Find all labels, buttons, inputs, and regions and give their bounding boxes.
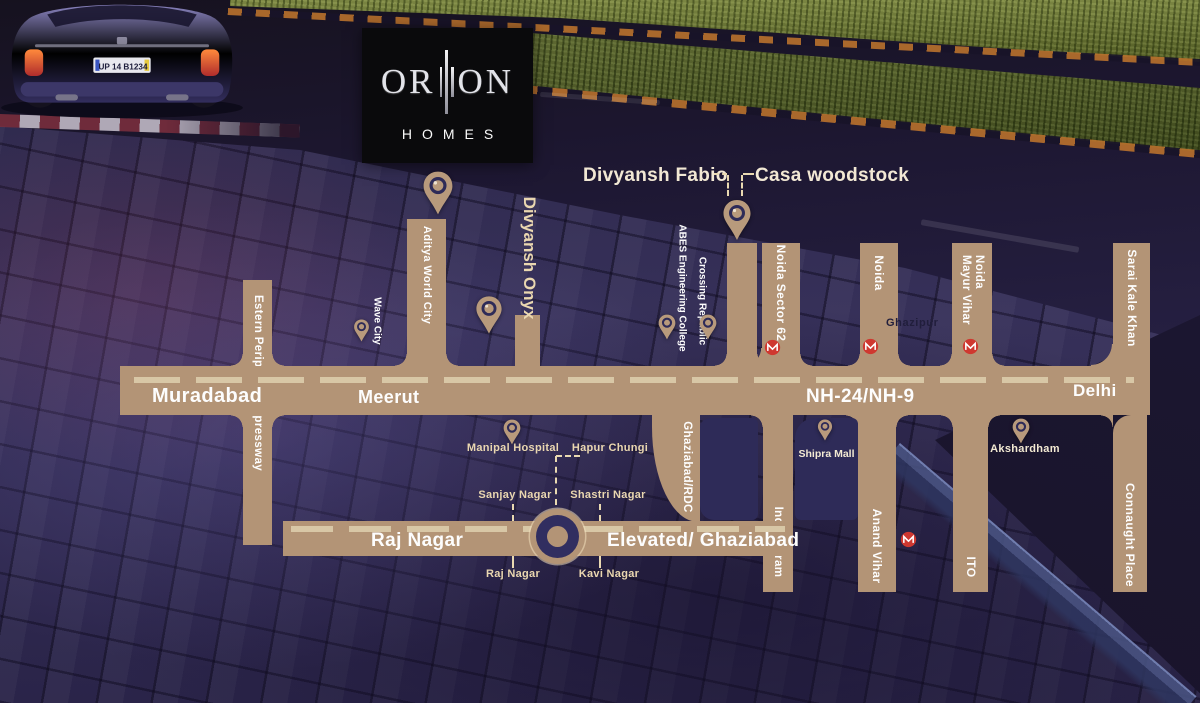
poi-connector (599, 504, 601, 521)
location-pin-shipra-mall-icon (817, 419, 833, 441)
location-pin-akshardham-icon (1011, 418, 1031, 444)
road-sarai-kale-khan: Sarai Kale Khan (1113, 243, 1150, 366)
road-nh24-nh9-highway: Muradabad Meerut NH-24/NH-9 Delhi (120, 366, 1150, 415)
location-pin-manipal-hospital-icon (502, 419, 522, 445)
road-fillet (272, 354, 284, 366)
location-pin-wave-city-icon (353, 319, 370, 342)
poi-connector (556, 455, 580, 457)
road-label: Anand Vihar (870, 509, 884, 584)
callout-connector (714, 173, 727, 175)
callout-connector (743, 173, 754, 175)
road-fillet (992, 354, 1004, 366)
city-block (700, 418, 758, 520)
road-fillet (744, 348, 762, 366)
metro-station-icon (900, 531, 917, 548)
license-plate-text: UP 14 B1234 (99, 62, 148, 71)
callout-divyansh-fabio: Divyansh Fabio (583, 165, 728, 187)
road-fillet (988, 415, 1000, 427)
road-ito: ITO (953, 415, 988, 592)
road-fillet (446, 354, 458, 366)
callout-connector (741, 175, 743, 196)
road-label: Ghaziabad/RDC (681, 422, 693, 513)
location-pin-divyansh-onyx-icon (475, 294, 503, 336)
poi-label-shipra-mall: Shipra Mall (795, 448, 858, 460)
logo-wordmark: OR ON (381, 50, 514, 114)
road-connaught-place: Connaught Place (1113, 415, 1147, 592)
road-label: Sarai Kale Khan (1125, 250, 1139, 347)
road-fillet (231, 354, 243, 366)
logo-text-on: ON (458, 62, 515, 102)
road-fillet (898, 354, 910, 366)
poi-connector (512, 556, 514, 568)
poi-label-hapur-chungi: Hapur Chungi (545, 442, 675, 454)
location-pin-aditya-world-city-icon (422, 170, 454, 216)
road-anand-vihar: Anand Vihar (858, 415, 896, 592)
road-label: ITO (964, 557, 978, 578)
metro-station-icon (962, 338, 979, 355)
road-label: Noida Sector 62 (774, 245, 788, 342)
city-label-delhi: Delhi (1073, 381, 1117, 401)
road-label: Aditya World City (421, 226, 433, 324)
road-fillet (800, 354, 812, 366)
location-pin-crossing-republic-icon (698, 314, 718, 340)
road-fillet (1091, 344, 1113, 366)
road-fillet (395, 354, 407, 366)
logo-subtitle: HOMES (392, 126, 503, 142)
metro-station-icon (862, 338, 879, 355)
roundabout-center (547, 526, 568, 547)
location-pin-casa-woodstock-icon (722, 198, 752, 242)
road-label-raj-nagar: Raj Nagar (371, 530, 463, 552)
metro-station-icon (764, 339, 781, 356)
poi-label-shastri-nagar: Shastri Nagar (543, 489, 673, 501)
road-fillet (231, 415, 243, 427)
logo-bars-icon (440, 50, 454, 114)
road-fillet (896, 415, 908, 427)
city-label-meerut: Meerut (358, 387, 419, 408)
road-divyansh-onyx-stub (515, 315, 540, 366)
road-fillet (715, 354, 727, 366)
orion-homes-logo: OR ON HOMES (362, 28, 533, 163)
road-label: Noida (872, 255, 886, 290)
roundabout (530, 509, 585, 564)
poi-connector (512, 504, 514, 521)
road-label-elevated-ghaziabad: Elevated/ Ghaziabad (607, 530, 799, 552)
road-label: Mayur Vihar (959, 255, 972, 325)
road-fillet (941, 415, 953, 427)
road-fillet (848, 354, 860, 366)
highway-center-dashes (134, 377, 1134, 383)
poi-label-kavi-nagar: Kavi Nagar (544, 568, 674, 580)
poi-connector (555, 456, 557, 505)
location-pin-abes-icon (657, 314, 677, 340)
poi-label-akshardham: Akshardham (960, 443, 1090, 455)
road-aditya-world-city: Aditya World City (407, 219, 446, 366)
road-label: Noida (972, 255, 985, 325)
logo-text-or: OR (381, 62, 436, 102)
road-fillet (1101, 415, 1113, 427)
highway-name-label: NH-24/NH-9 (806, 386, 915, 408)
road-indirapuram: Indirapuram (763, 415, 793, 592)
car-image: UP 14 B1234 (0, 0, 250, 120)
road-fillet (940, 354, 952, 366)
callout-casa-woodstock: Casa woodstock (755, 165, 909, 187)
city-label-muradabad: Muradabad (152, 385, 262, 408)
callout-connector (727, 175, 729, 196)
road-label: Connaught Place (1123, 483, 1137, 587)
road-fillet (272, 415, 284, 427)
location-map: UP 14 B1234 OR ON HOMES Divyansh Fabio C… (0, 0, 1200, 703)
poi-connector (599, 556, 601, 568)
poi-label-ghazipur: Ghazipur (886, 317, 938, 329)
